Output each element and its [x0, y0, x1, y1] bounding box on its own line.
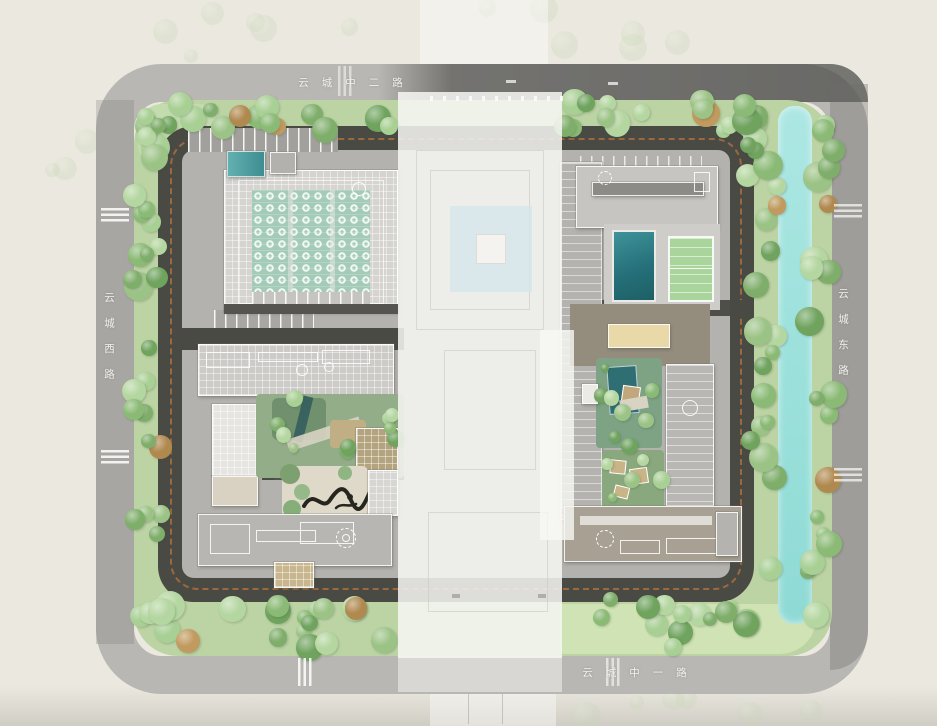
ghost-tree — [619, 34, 646, 61]
central-axis-faded-band — [398, 92, 562, 658]
plaza-pool-island — [476, 234, 506, 264]
garden-pavilion — [609, 459, 626, 475]
crosswalk — [101, 208, 129, 222]
top-road-edge-ticks — [430, 96, 566, 101]
central-axis-strip-south — [430, 690, 556, 726]
calligraphy-garden-planting — [280, 464, 300, 484]
roof-detail — [620, 540, 660, 554]
faded-extension-east — [540, 330, 574, 540]
site-plan-canvas: 云城中二路 云城中一路 云城西路 云城东路 — [0, 0, 937, 726]
east-tower-building — [666, 364, 714, 506]
road-label-south: 云城中一路 — [556, 665, 726, 679]
exhibition-roof-circle-mark — [352, 182, 366, 196]
exhibition-roof-garden — [252, 190, 370, 292]
axis-tick — [538, 594, 546, 598]
road-label-west: 云城西路 — [103, 292, 117, 412]
small-white-annex — [582, 384, 598, 404]
roof-detail — [210, 524, 250, 554]
ghost-tree — [246, 13, 265, 32]
ghost-tree — [665, 30, 690, 55]
lane-arrow-mark — [608, 82, 618, 85]
roof-detail — [666, 538, 718, 554]
ghost-tree — [250, 15, 277, 42]
sports-court — [668, 236, 714, 302]
paved-court — [368, 470, 398, 516]
ghost-tree — [53, 157, 77, 181]
ghost-tree — [621, 21, 646, 46]
west-khaki-block — [212, 476, 258, 506]
roof-detail — [206, 352, 250, 368]
roof-stripe — [580, 516, 712, 525]
ghost-tree — [184, 49, 199, 64]
sports-court-centerline — [670, 268, 712, 269]
ghost-tree — [800, 700, 822, 722]
roof-garden-path — [330, 190, 335, 292]
garden-pavilion — [629, 467, 649, 485]
helipad-inner-circle — [342, 534, 350, 542]
exhibition-dark-facade — [224, 304, 398, 314]
axis-ghost-outline — [428, 512, 548, 612]
service-block — [270, 152, 296, 174]
roof-vent-circle — [296, 364, 308, 376]
tower-circle-mark — [682, 400, 698, 416]
road-label-east: 云城东路 — [837, 288, 851, 408]
crosswalk — [834, 468, 862, 482]
ghost-tree — [153, 19, 178, 44]
roof-circle-mark — [596, 530, 614, 548]
east-end-block — [716, 512, 738, 556]
west-white-tower — [212, 404, 258, 476]
ghost-tree — [738, 702, 762, 726]
ghost-tree — [45, 163, 60, 178]
east-canal — [778, 106, 812, 624]
east-north-roof-slot — [592, 182, 704, 196]
glass-pavilion — [227, 151, 265, 177]
utility-line — [502, 692, 503, 724]
faded-south-road-overlay — [398, 656, 562, 692]
east-roof-circle-mark — [598, 171, 612, 185]
ghost-tree — [341, 18, 358, 35]
axis-tick — [452, 594, 460, 598]
roof-detail — [258, 352, 318, 362]
utility-line — [468, 692, 469, 724]
crosswalk — [834, 204, 862, 218]
ghost-tree — [551, 31, 578, 58]
south-entry-canopy-west — [274, 562, 314, 588]
ghost-tree — [571, 702, 601, 726]
crosswalk — [101, 450, 129, 464]
roof-vent-circle — [324, 362, 334, 372]
swimming-pool — [612, 230, 656, 302]
lane-arrow-mark — [506, 80, 516, 83]
crosswalk — [298, 658, 312, 686]
east-tan-canopy — [608, 324, 670, 348]
ghost-tree — [630, 695, 644, 709]
roof-detail — [694, 172, 710, 192]
roof-garden-path — [288, 190, 293, 292]
central-axis-strip-north — [420, 0, 548, 70]
axis-ghost-outline — [444, 350, 536, 470]
road-label-north: 云城中二路 — [282, 75, 432, 89]
ghost-tree — [201, 2, 224, 25]
parking-row-northwest — [188, 128, 338, 152]
